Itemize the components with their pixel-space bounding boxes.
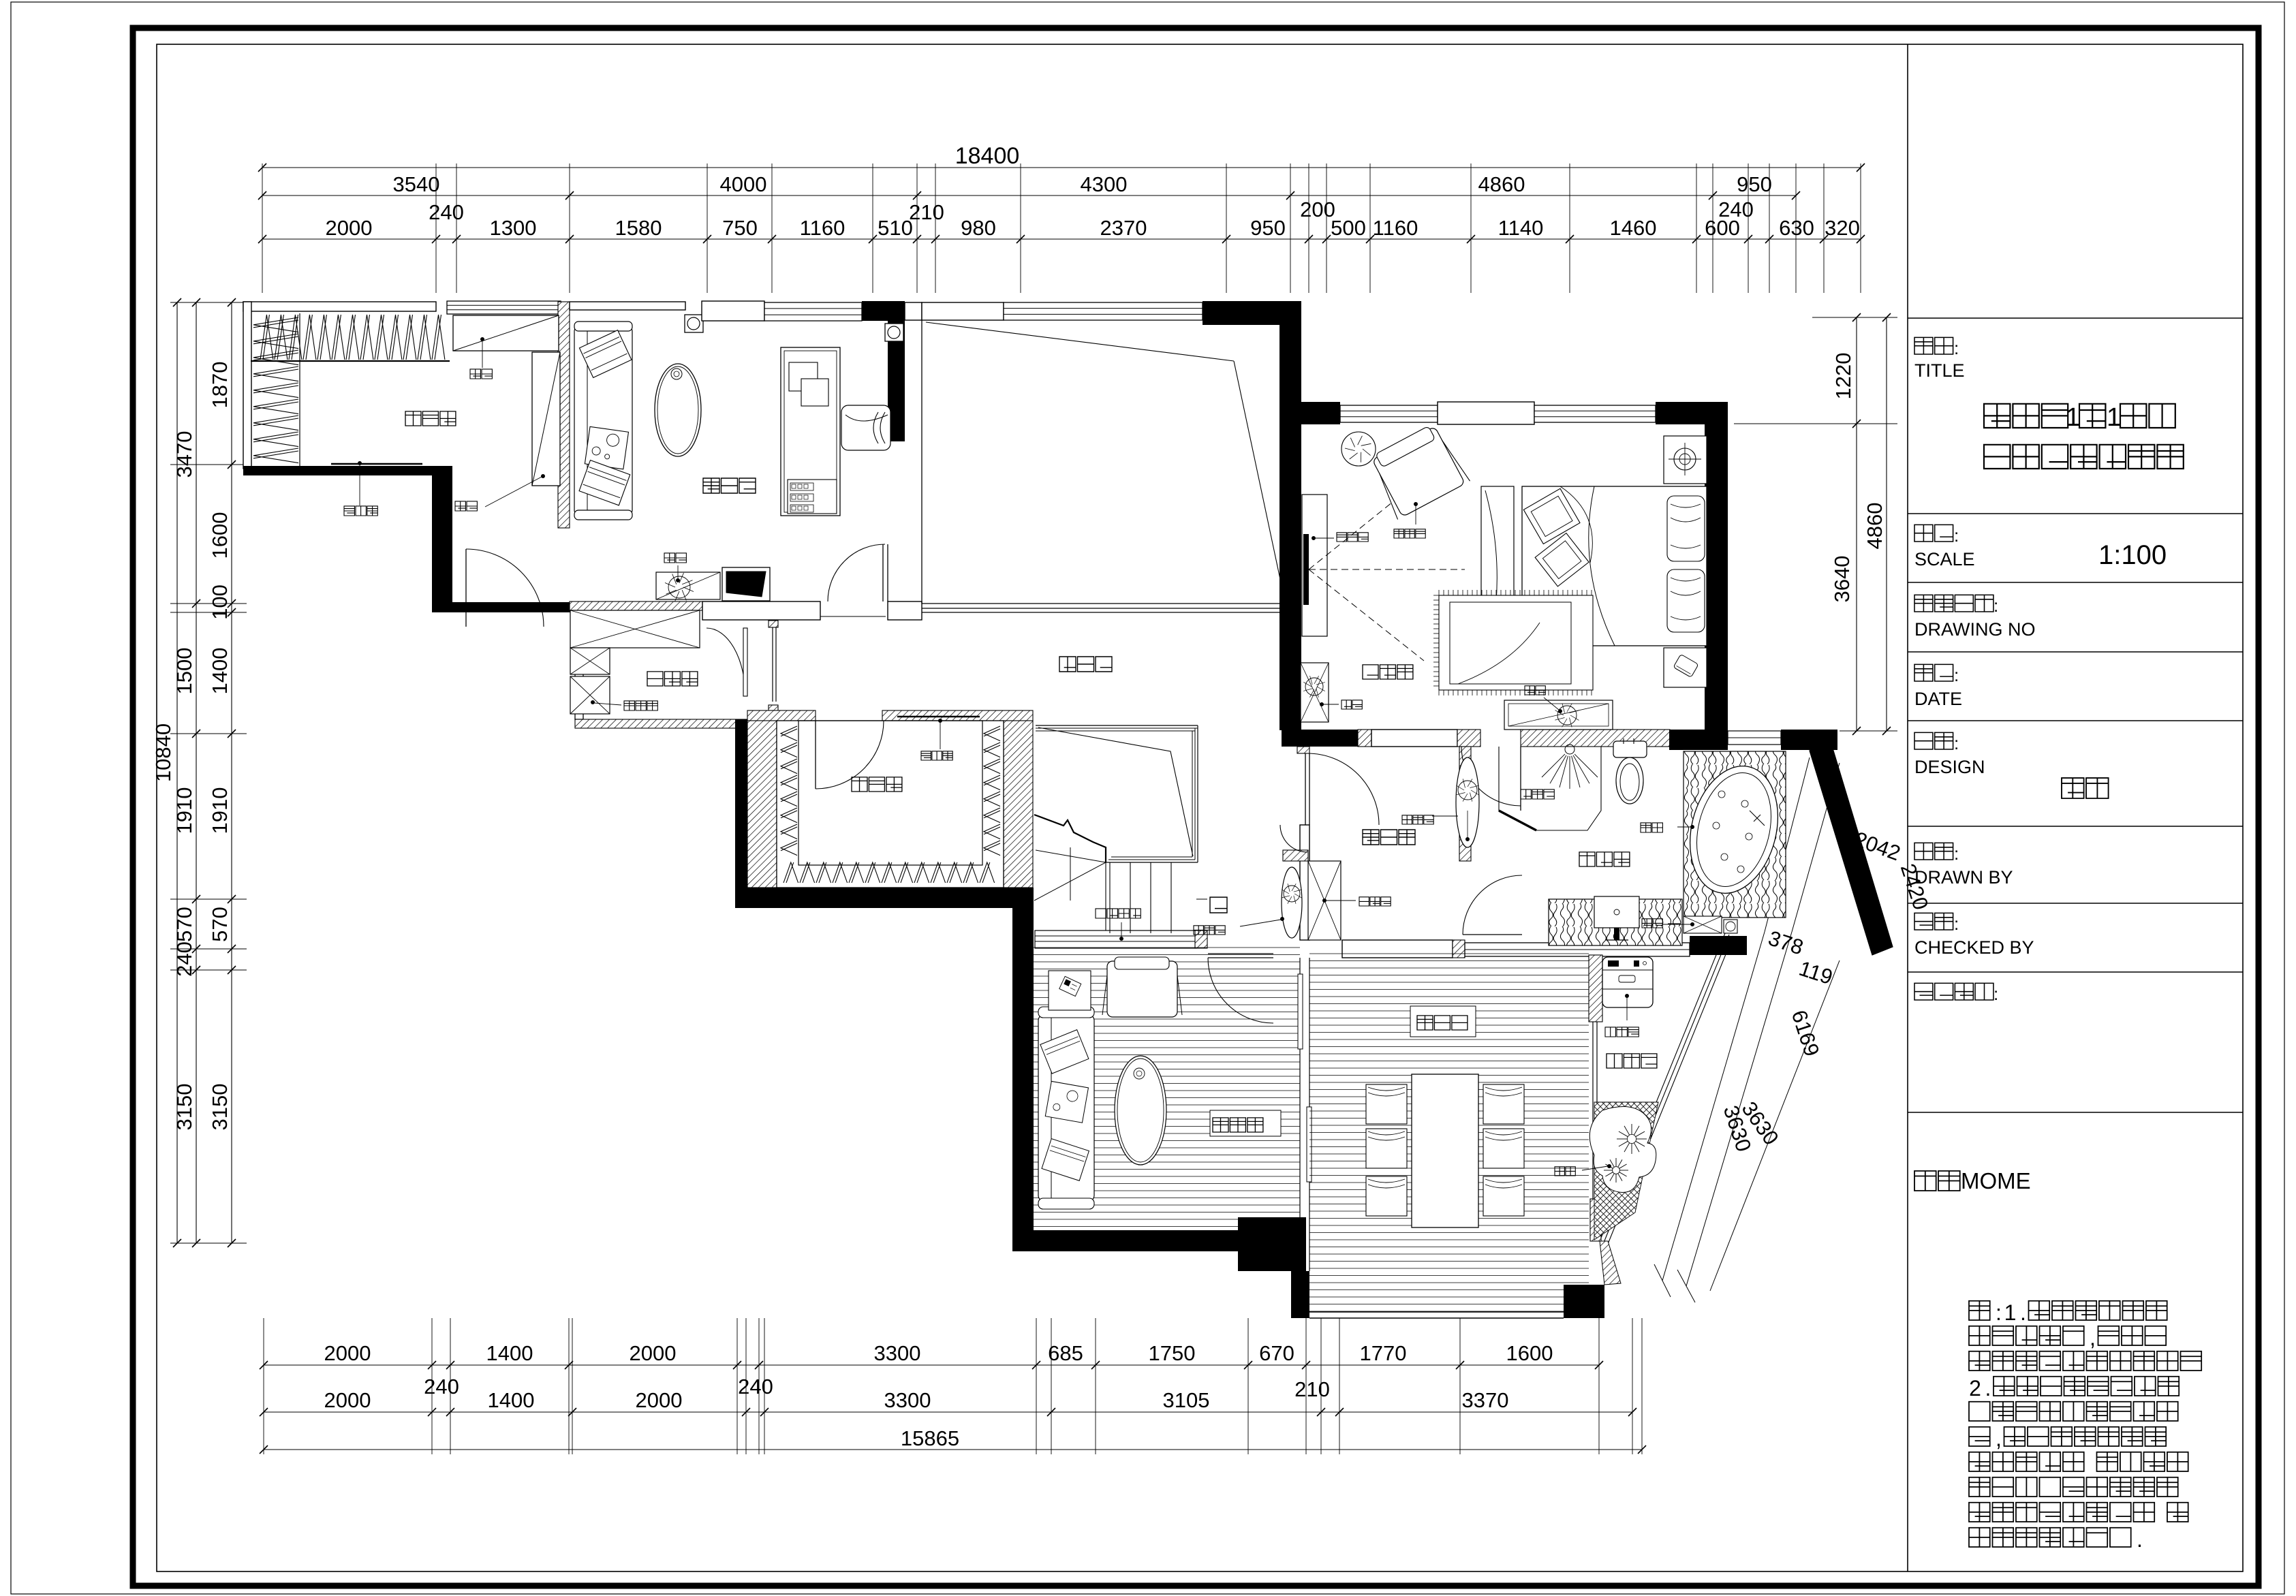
svg-text:3370: 3370 [1462, 1388, 1509, 1412]
svg-text:240: 240 [424, 1375, 459, 1398]
svg-text:3150: 3150 [208, 1084, 232, 1131]
svg-text:1300: 1300 [490, 216, 537, 240]
svg-text:SCALE: SCALE [1914, 549, 1975, 569]
svg-text:4860: 4860 [1478, 172, 1525, 196]
svg-text:630: 630 [1779, 216, 1814, 240]
svg-text:2000: 2000 [326, 216, 373, 240]
svg-text:2000: 2000 [324, 1388, 371, 1412]
svg-text:3540: 3540 [393, 172, 440, 196]
svg-text::: : [1954, 338, 1959, 358]
svg-text:TITLE: TITLE [1914, 360, 1965, 381]
svg-text:240: 240 [429, 200, 464, 224]
svg-text:.: . [2020, 1300, 2026, 1325]
svg-text:210: 210 [909, 200, 944, 224]
svg-text::: : [1996, 1300, 2002, 1325]
svg-text:,: , [2090, 1326, 2096, 1350]
svg-text:570: 570 [172, 907, 196, 942]
svg-text:1140: 1140 [1498, 216, 1544, 240]
svg-text:1: 1 [2107, 403, 2121, 432]
svg-text:240: 240 [738, 1375, 773, 1398]
svg-text:.: . [2137, 1527, 2143, 1552]
svg-text:1910: 1910 [172, 787, 196, 834]
svg-text:1: 1 [2066, 403, 2080, 432]
svg-text:1: 1 [2004, 1300, 2017, 1325]
svg-text:2000: 2000 [630, 1341, 677, 1365]
svg-text:200: 200 [1300, 198, 1335, 221]
svg-text:3640: 3640 [1830, 556, 1854, 603]
svg-text:510: 510 [878, 216, 913, 240]
svg-text:1870: 1870 [208, 362, 232, 409]
svg-text::: : [1954, 665, 1959, 685]
svg-text::: : [1994, 595, 1998, 616]
svg-text:2370: 2370 [1100, 216, 1147, 240]
svg-text:DATE: DATE [1914, 689, 1962, 709]
svg-text::: : [1954, 843, 1959, 864]
svg-text:3105: 3105 [1163, 1388, 1210, 1412]
svg-text:1580: 1580 [615, 216, 662, 240]
svg-text:15865: 15865 [901, 1426, 959, 1450]
svg-text:210: 210 [1294, 1377, 1330, 1401]
svg-text:320: 320 [1825, 216, 1860, 240]
svg-text:1600: 1600 [1506, 1341, 1553, 1365]
svg-text:1220: 1220 [1831, 353, 1855, 400]
svg-text:1770: 1770 [1360, 1341, 1407, 1365]
svg-text::: : [1994, 984, 1998, 1004]
svg-text:950: 950 [1737, 172, 1772, 196]
svg-text:2000: 2000 [324, 1341, 371, 1365]
svg-text:4000: 4000 [720, 172, 767, 196]
svg-text:4860: 4860 [1863, 503, 1887, 550]
svg-text:3150: 3150 [172, 1084, 196, 1131]
svg-text:,: , [1996, 1426, 2002, 1451]
svg-text:950: 950 [1250, 216, 1286, 240]
svg-text::: : [1954, 913, 1959, 934]
svg-text:DRAWING NO: DRAWING NO [1914, 619, 2036, 640]
svg-text:980: 980 [961, 216, 996, 240]
svg-text::: : [1954, 733, 1959, 753]
svg-text:2: 2 [1969, 1376, 1981, 1401]
svg-text:1910: 1910 [208, 787, 232, 834]
svg-text:2000: 2000 [636, 1388, 683, 1412]
svg-text:685: 685 [1048, 1341, 1083, 1365]
svg-text:18400: 18400 [955, 143, 1020, 169]
svg-text:3300: 3300 [884, 1388, 931, 1412]
svg-text:1400: 1400 [208, 648, 232, 695]
svg-text:3470: 3470 [172, 431, 196, 478]
svg-text:DRAWN BY: DRAWN BY [1914, 867, 2013, 888]
svg-text:1750: 1750 [1149, 1341, 1196, 1365]
svg-text:DESIGN: DESIGN [1914, 757, 1985, 777]
svg-text:4300: 4300 [1081, 172, 1128, 196]
svg-text:1160: 1160 [1373, 216, 1418, 240]
svg-text:750: 750 [722, 216, 758, 240]
svg-text:1:100: 1:100 [2098, 540, 2167, 570]
svg-text:670: 670 [1259, 1341, 1294, 1365]
svg-text::: : [1954, 525, 1959, 546]
svg-text:500: 500 [1331, 216, 1366, 240]
svg-text:1160: 1160 [800, 216, 846, 240]
svg-text:1400: 1400 [488, 1388, 535, 1412]
svg-text:MOME: MOME [1961, 1168, 2031, 1193]
svg-text:1600: 1600 [208, 512, 232, 559]
svg-text:570: 570 [208, 907, 232, 942]
svg-text:1500: 1500 [172, 648, 196, 695]
svg-text:1460: 1460 [1610, 216, 1657, 240]
svg-text:CHECKED BY: CHECKED BY [1914, 937, 2034, 958]
svg-text:.: . [1985, 1376, 1991, 1401]
svg-text:100: 100 [208, 584, 232, 620]
svg-text:10840: 10840 [151, 723, 175, 782]
svg-text:3300: 3300 [874, 1341, 921, 1365]
svg-text:1400: 1400 [486, 1341, 533, 1365]
svg-text:240: 240 [172, 941, 196, 977]
